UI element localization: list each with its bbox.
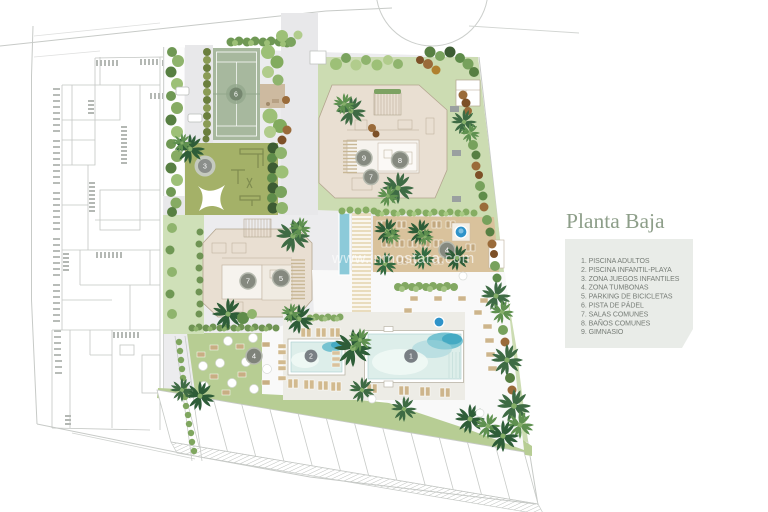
svg-text:2: 2 <box>309 354 313 361</box>
svg-text:7. SALAS COMUNES: 7. SALAS COMUNES <box>581 311 649 318</box>
svg-text:4. ZONA TUMBONAS: 4. ZONA TUMBONAS <box>581 285 649 292</box>
svg-text:6. PISTA DE PÁDEL: 6. PISTA DE PÁDEL <box>581 301 644 310</box>
svg-text:5. PARKING DE BICICLETAS: 5. PARKING DE BICICLETAS <box>581 294 673 301</box>
svg-text:Planta Baja: Planta Baja <box>566 209 665 233</box>
svg-text:5: 5 <box>279 274 283 283</box>
svg-text:1: 1 <box>409 354 413 361</box>
svg-text:9: 9 <box>362 154 366 163</box>
svg-text:3. ZONA JUEGOS INFANTILES: 3. ZONA JUEGOS INFANTILES <box>581 276 680 283</box>
svg-text:7: 7 <box>246 277 250 286</box>
svg-text:www.inmostara.com: www.inmostara.com <box>331 250 475 267</box>
svg-text:1. PISCINA ADULTOS: 1. PISCINA ADULTOS <box>581 258 650 265</box>
svg-text:8: 8 <box>398 156 402 165</box>
svg-text:4: 4 <box>252 352 256 361</box>
svg-text:9. GIMNASIO: 9. GIMNASIO <box>581 329 624 336</box>
svg-text:8. BAÑOS COMUNES: 8. BAÑOS COMUNES <box>581 318 651 327</box>
svg-text:3: 3 <box>203 164 207 171</box>
svg-text:7: 7 <box>369 175 373 182</box>
svg-text:2. PISCINA INFANTIL-PLAYA: 2. PISCINA INFANTIL-PLAYA <box>581 267 672 274</box>
svg-text:6: 6 <box>234 91 238 98</box>
